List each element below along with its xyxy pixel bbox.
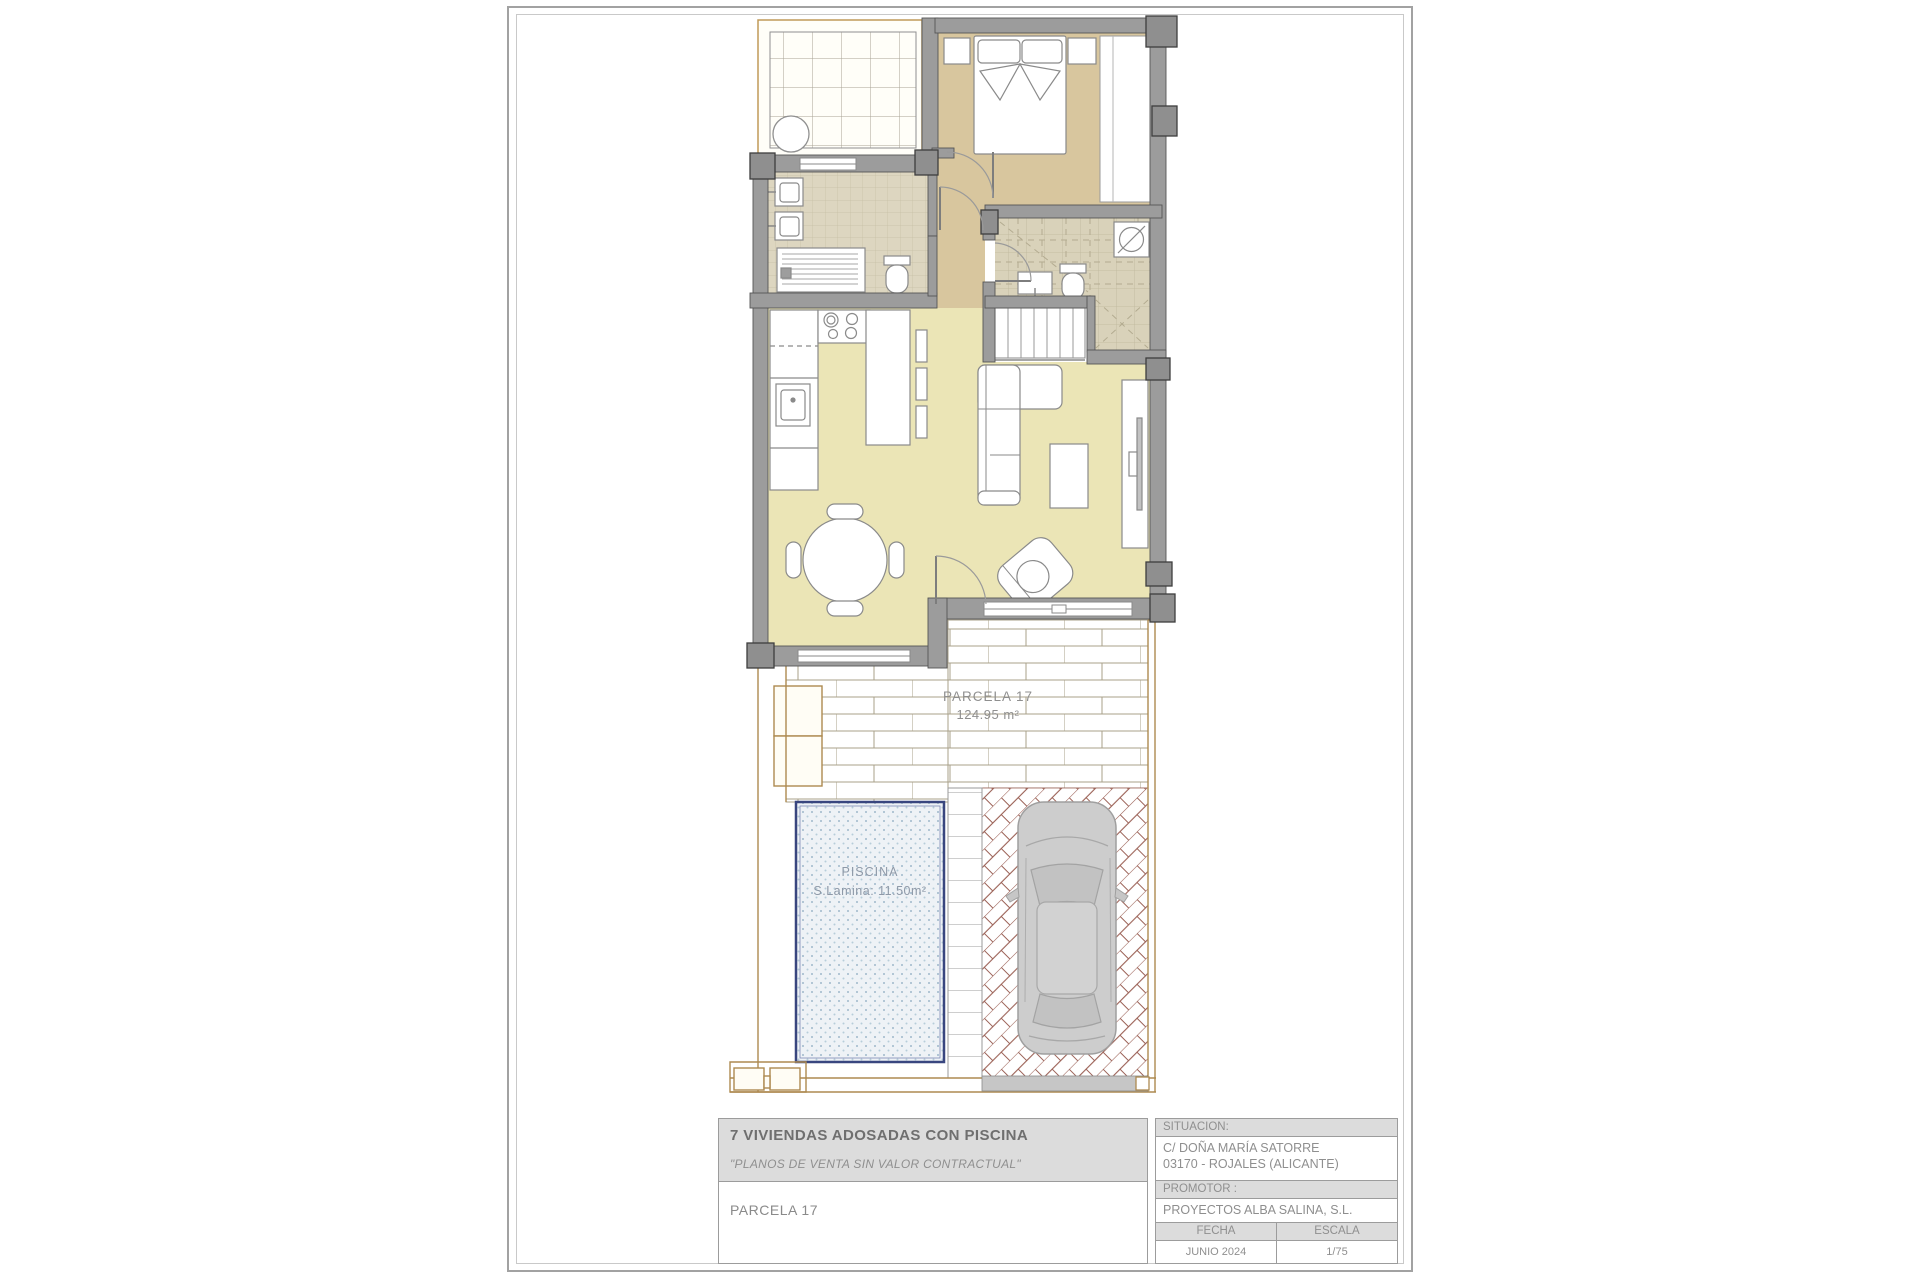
project-title: 7 VIVIENDAS ADOSADAS CON PISCINA <box>730 1127 1147 1144</box>
parcela-label: PARCELA 17 <box>943 689 1033 704</box>
wardrobe <box>1100 36 1152 202</box>
stairs <box>995 308 1085 360</box>
kitchen-peninsula <box>866 310 910 445</box>
car <box>1006 802 1128 1054</box>
nightstand <box>1068 38 1096 64</box>
kitchen-shelves <box>916 330 927 438</box>
planter <box>774 686 822 736</box>
address-line1: C/ DOÑA MARÍA SATORRE <box>1163 1140 1390 1156</box>
fecha-escala-values: JUNIO 2024 1/75 <box>1156 1241 1397 1263</box>
utility-boxes <box>730 1062 806 1092</box>
escala-label: ESCALA <box>1276 1223 1397 1240</box>
sheet-name: PARCELA 17 <box>719 1182 1147 1263</box>
sidewalk-strip <box>982 1076 1148 1091</box>
kitchen-counter <box>770 310 818 490</box>
fecha-escala-header: FECHA ESCALA <box>1156 1223 1397 1241</box>
parcela-tiles-right <box>948 620 1148 788</box>
screenshot-canvas: PISCINA S.Lamina: 11.50m² <box>0 0 1920 1280</box>
bed <box>974 36 1066 154</box>
fecha-value: JUNIO 2024 <box>1156 1241 1276 1263</box>
boundary-post <box>1136 1077 1149 1090</box>
title-block: 7 VIVIENDAS ADOSADAS CON PISCINA "PLANOS… <box>718 1118 1398 1264</box>
dining-window <box>798 650 910 662</box>
disclaimer-note: "PLANOS DE VENTA SIN VALOR CONTRACTUAL" <box>730 1157 1147 1171</box>
living-sliding-door <box>984 602 1132 616</box>
coffee-table <box>1050 444 1088 508</box>
situacion-address: C/ DOÑA MARÍA SATORRE 03170 - ROJALES (A… <box>1156 1137 1397 1181</box>
shower-tray <box>777 248 865 292</box>
patio-window <box>800 158 856 170</box>
bathroom2-sink <box>1018 272 1052 296</box>
patio-planter <box>773 116 809 152</box>
project-header: 7 VIVIENDAS ADOSADAS CON PISCINA "PLANOS… <box>719 1119 1147 1182</box>
toilet <box>884 256 910 293</box>
promotor-label: PROMOTOR : <box>1156 1181 1397 1199</box>
pool-area-label: S.Lamina: 11.50m² <box>813 884 926 898</box>
promotor-name: PROYECTOS ALBA SALINA, S.L. <box>1156 1199 1397 1223</box>
situacion-label: SITUACION: <box>1156 1119 1397 1137</box>
cooktop <box>818 310 870 343</box>
washing-machine <box>1114 222 1149 257</box>
floor-plan-svg: PISCINA S.Lamina: 11.50m² <box>0 0 1920 1280</box>
plot-outdoor: PISCINA S.Lamina: 11.50m² <box>730 620 1168 1092</box>
nightstand <box>944 38 970 64</box>
pool: PISCINA S.Lamina: 11.50m² <box>796 802 944 1062</box>
garden-path <box>948 788 982 1078</box>
title-block-right: SITUACION: C/ DOÑA MARÍA SATORRE 03170 -… <box>1155 1118 1398 1264</box>
parcela-area-label: 124.95 m² <box>956 707 1019 722</box>
title-block-left: 7 VIVIENDAS ADOSADAS CON PISCINA "PLANOS… <box>718 1118 1148 1264</box>
entrance-patio <box>758 20 922 158</box>
pool-label: PISCINA <box>841 865 898 879</box>
address-line2: 03170 - ROJALES (ALICANTE) <box>1163 1156 1390 1172</box>
planter <box>774 736 822 786</box>
toilet <box>1060 264 1086 299</box>
tv-unit <box>1122 380 1148 548</box>
escala-value: 1/75 <box>1276 1241 1397 1263</box>
fecha-label: FECHA <box>1156 1223 1276 1240</box>
